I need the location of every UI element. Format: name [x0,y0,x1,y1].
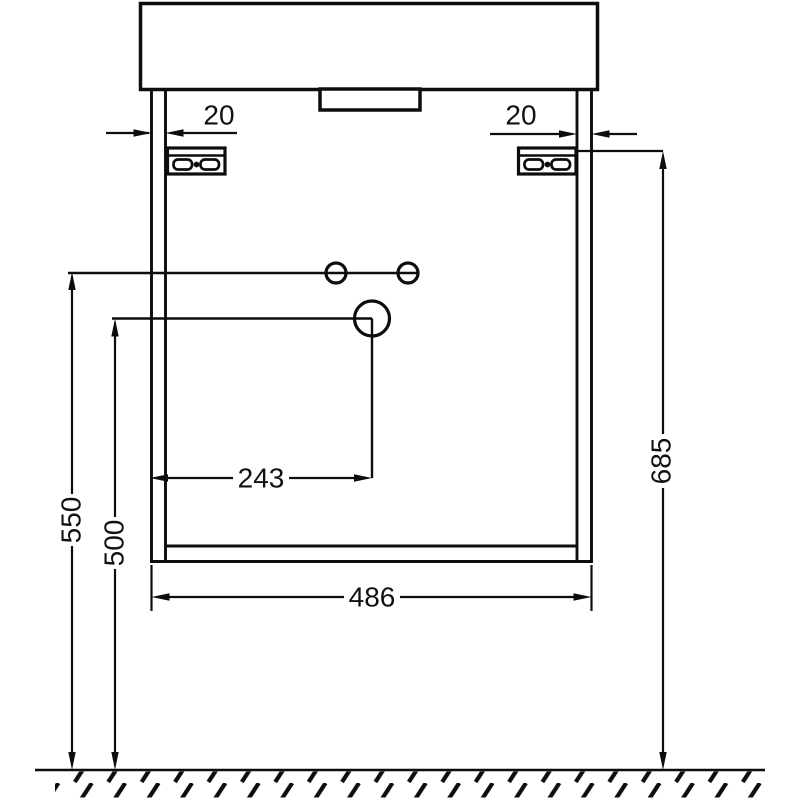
dim-20-left-arrow-left [166,129,184,136]
dimension-20-left: 20 [106,100,237,137]
dimension-500: 500 [99,319,130,771]
ground-hatching [55,772,767,798]
dim-550-arrow-top [68,272,75,290]
left-mounting-bracket [168,148,226,174]
dim-486-label: 486 [349,582,396,613]
right-bracket-slot-2 [552,160,571,170]
right-bracket-slot-1 [525,160,544,170]
dim-685-arrow-bottom [659,752,666,770]
dimension-486: 486 [152,565,592,613]
dim-550-label: 550 [56,497,87,544]
dim-20-right-arrow-right [559,130,577,137]
dimension-550: 550 [56,272,87,770]
dim-486-arrow-right [574,593,592,600]
dim-243-arrow-right [354,474,372,481]
drain-hole-reference [112,301,390,478]
left-bracket-slot-2 [201,160,220,170]
upper-holes-reference [68,263,418,283]
dim-243-label: 243 [238,463,285,494]
bottom-shelf [150,546,593,562]
dim-20-right-label: 20 [505,100,536,131]
cabinet-elevation-drawing: 20 20 243 486 550 500 [0,0,800,800]
dim-486-arrow-left [152,593,170,600]
left-side-panel [152,89,166,563]
dim-685-arrow-top [659,151,666,169]
dim-20-left-arrow-right [134,129,152,136]
right-mounting-bracket [519,148,577,174]
dim-20-left-label: 20 [203,100,234,131]
left-bracket-screw-dot [194,162,200,168]
overflow-slot [320,89,420,110]
washbasin-outline [141,4,598,90]
dim-500-arrow-top [111,319,118,337]
technical-drawing-canvas: 20 20 243 486 550 500 [0,0,800,800]
left-bracket-slot-1 [174,160,193,170]
ground [35,770,767,798]
dimension-243: 243 [150,463,372,494]
dimension-20-right: 20 [490,100,637,138]
dim-550-arrow-bottom [68,752,75,770]
right-bracket-screw-dot [545,162,551,168]
dim-20-right-arrow-left [592,130,610,137]
right-side-panel [577,89,592,563]
dim-685-label: 685 [646,438,677,485]
dim-500-arrow-bottom [111,752,118,770]
dim-500-label: 500 [99,520,130,567]
